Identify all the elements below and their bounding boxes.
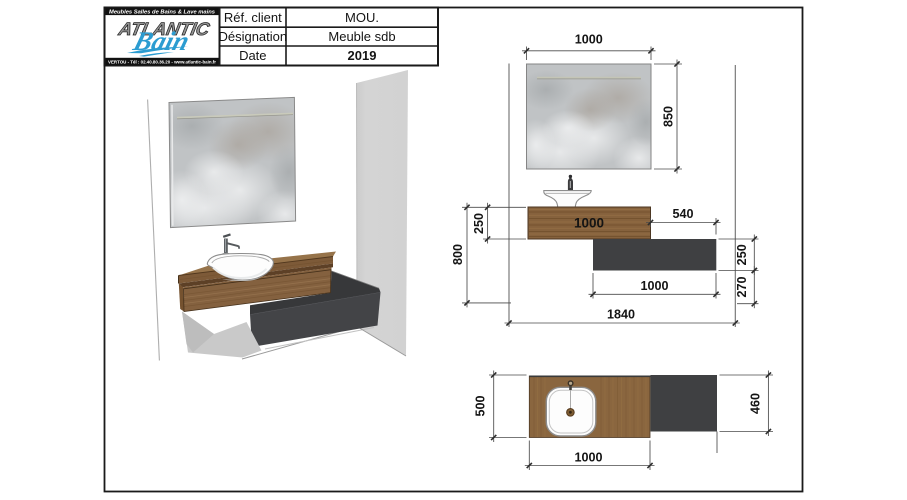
svg-text:1000: 1000 <box>574 451 602 465</box>
svg-text:1000: 1000 <box>640 279 668 293</box>
svg-text:250: 250 <box>735 244 749 265</box>
svg-text:460: 460 <box>749 393 763 414</box>
svg-text:800: 800 <box>451 244 465 265</box>
svg-text:Meubles Salles de Bains & Lave: Meubles Salles de Bains & Lave mains <box>109 10 215 16</box>
svg-text:2019: 2019 <box>348 48 377 63</box>
svg-text:1000: 1000 <box>575 33 603 47</box>
svg-text:Réf. client: Réf. client <box>224 10 282 25</box>
svg-text:500: 500 <box>474 395 488 416</box>
svg-text:270: 270 <box>735 276 749 297</box>
svg-text:Meuble sdb: Meuble sdb <box>328 29 395 44</box>
svg-text:1840: 1840 <box>607 308 635 322</box>
svg-text:Désignation: Désignation <box>218 29 287 44</box>
svg-text:850: 850 <box>662 106 676 127</box>
svg-text:Date: Date <box>239 48 266 63</box>
svg-text:1000: 1000 <box>574 216 604 231</box>
svg-text:250: 250 <box>472 213 486 234</box>
svg-text:540: 540 <box>672 207 693 221</box>
svg-text:VERTOU - Tél : 02.40.80.36.20: VERTOU - Tél : 02.40.80.36.20 - www.atla… <box>108 59 216 65</box>
svg-text:MOU.: MOU. <box>345 10 379 25</box>
